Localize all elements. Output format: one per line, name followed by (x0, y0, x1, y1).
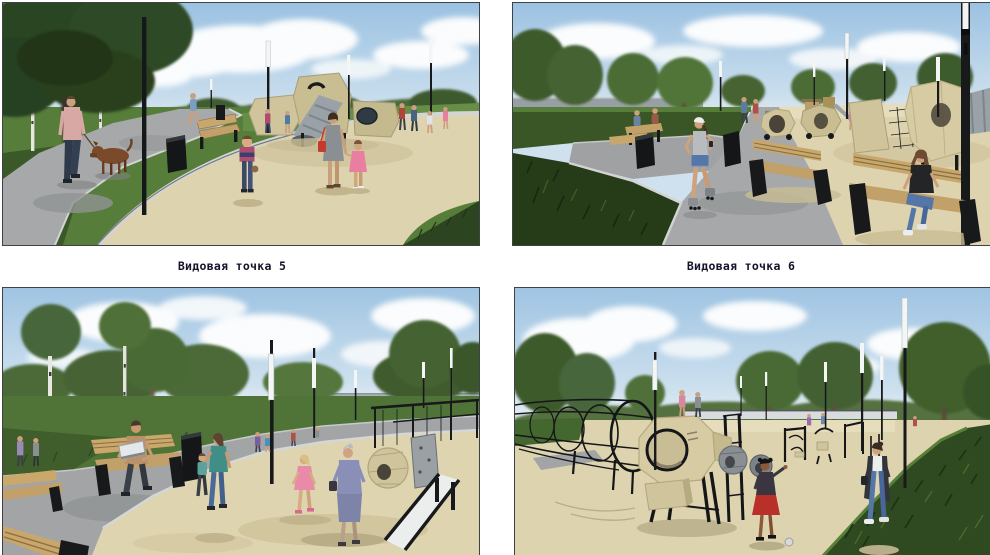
viewpoint-8-image (515, 288, 990, 555)
viewpoint-6-image (513, 3, 990, 245)
render-viewpoint-6 (512, 2, 990, 246)
page: Видовая точка 5 Видовая точка 6 (0, 0, 990, 555)
caption-viewpoint-6: Видовая точка 6 (512, 258, 970, 274)
ball (785, 538, 793, 546)
render-viewpoint-7 (2, 287, 480, 555)
trash-bin (723, 131, 741, 167)
caption-viewpoint-5: Видовая точка 5 (2, 258, 462, 274)
render-viewpoint-8 (514, 287, 990, 555)
render-viewpoint-5 (2, 2, 480, 246)
viewpoint-7-image (3, 288, 479, 555)
viewpoint-5-image (3, 3, 479, 245)
